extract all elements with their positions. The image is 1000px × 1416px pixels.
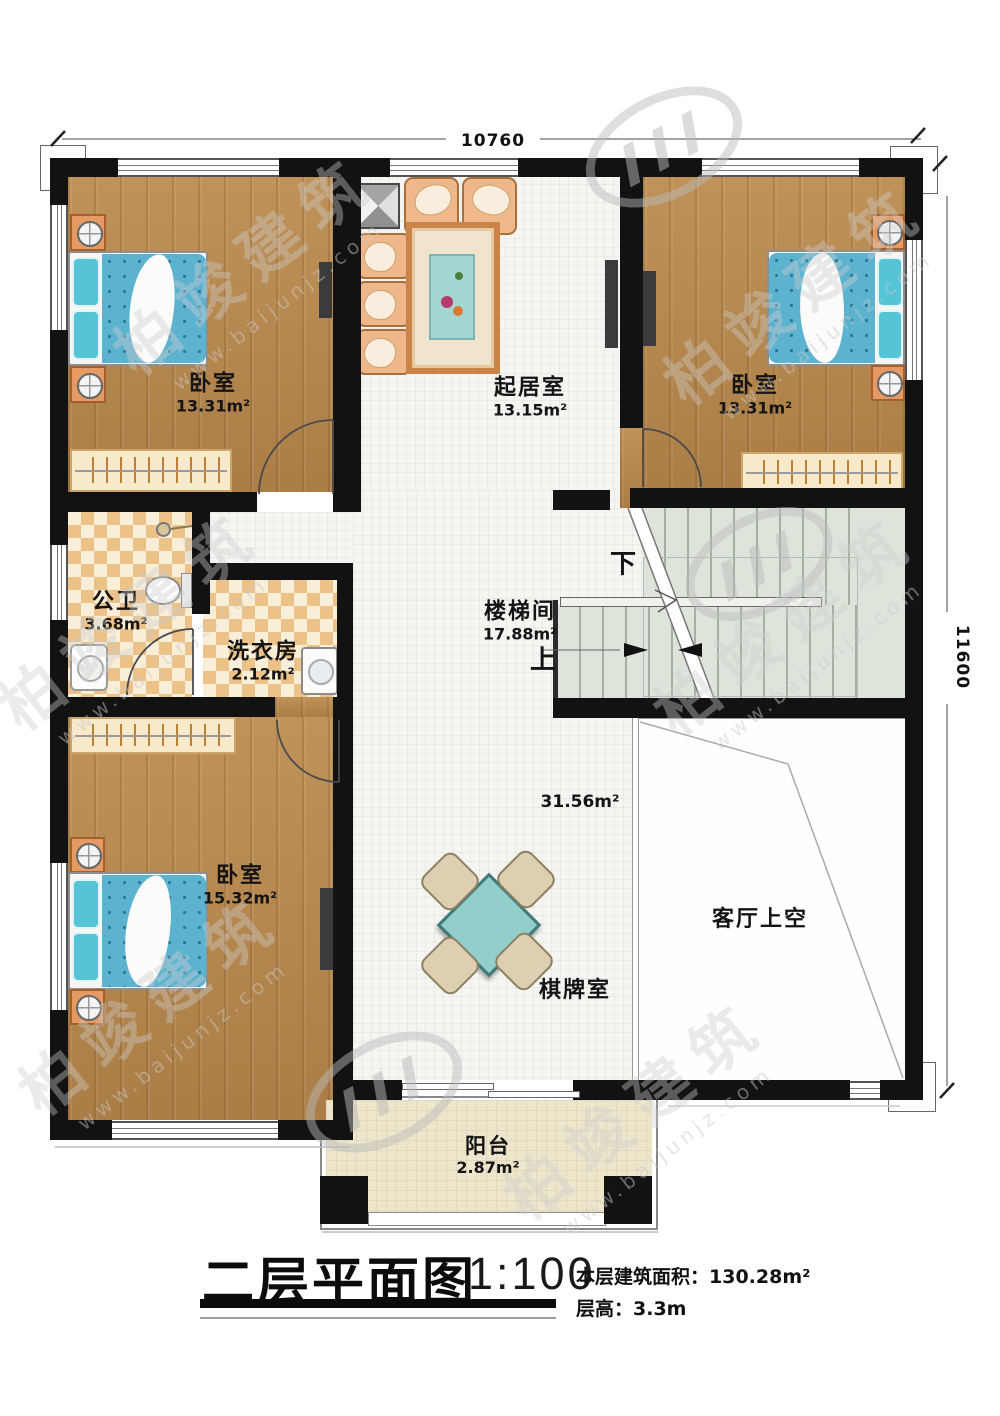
wall [333, 697, 353, 1120]
window-icon [50, 205, 68, 330]
wardrobe-icon [70, 717, 236, 754]
floor-height-line: 层高：3.3m [576, 1294, 686, 1321]
room-area: 3.68m² [84, 616, 147, 635]
wall [278, 1120, 353, 1140]
wall [553, 698, 905, 718]
wall [663, 1080, 850, 1100]
wall [620, 175, 643, 428]
wall [630, 488, 905, 508]
lamp-icon [877, 220, 903, 246]
room-name: 卧室 [203, 864, 277, 890]
floor-area-label: 本层建筑面积： [576, 1266, 709, 1288]
tv-icon [320, 888, 333, 970]
room-label-balcony: 阳台 2.87m² [456, 1134, 519, 1178]
sofa-pillow [410, 180, 455, 220]
wall [203, 563, 343, 580]
sofa-pillow [469, 181, 513, 219]
dimension-right: 11600 [952, 625, 972, 689]
nightstand-icon [70, 989, 105, 1025]
tv-icon [643, 271, 656, 346]
wardrobe-icon [70, 449, 232, 492]
pillow-icon [72, 310, 100, 360]
rug-icon [406, 222, 500, 374]
wall [353, 1080, 402, 1100]
toilet-icon [145, 576, 181, 605]
logo-bar [682, 110, 699, 156]
wall [553, 490, 610, 510]
pillow-icon [877, 310, 903, 360]
toilet-tank [181, 573, 192, 608]
stair-handrail [560, 597, 822, 607]
room-name: 起居室 [493, 376, 567, 402]
window-icon [112, 1121, 278, 1140]
corner-table-icon [356, 183, 400, 229]
wall [50, 330, 68, 545]
room-label-bedroom-top-left: 卧室 13.31m² [176, 372, 250, 417]
nightstand-icon [871, 214, 905, 250]
wall [905, 158, 923, 240]
floor-height-value: 3.3m [633, 1298, 686, 1320]
window-icon [390, 158, 518, 177]
sliding-door-icon [402, 1083, 494, 1090]
shower-head-icon [156, 522, 171, 537]
washing-machine-icon [301, 647, 338, 695]
dimension-top: 10760 [461, 131, 525, 151]
room-area: 2.12m² [227, 666, 299, 685]
room-area: 13.31m² [176, 398, 250, 417]
window-icon [850, 1081, 880, 1100]
title-underline-thin [200, 1317, 556, 1319]
window-icon [702, 158, 859, 177]
living-void-area [638, 718, 905, 1080]
room-label-bedroom-bottom-left: 卧室 15.32m² [203, 864, 277, 909]
sink-bowl [77, 655, 104, 682]
nightstand-icon [70, 366, 106, 403]
game-room-area-label: 31.56m² [541, 792, 620, 812]
room-name: 客厅上空 [712, 907, 808, 933]
pillow-icon [72, 257, 100, 307]
wardrobe-rail [75, 470, 227, 472]
window-icon [905, 240, 923, 380]
sofa-cushion [356, 281, 412, 327]
sofa-left-icon [356, 233, 412, 375]
room-area: 31.56m² [541, 792, 620, 812]
lamp-icon [877, 371, 903, 397]
nightstand-icon [70, 214, 106, 251]
balcony-sill [368, 1212, 606, 1226]
wall [573, 1080, 663, 1100]
stair-well-outline [643, 557, 858, 697]
floor-height-label: 层高： [576, 1298, 633, 1320]
floor-area-line: 本层建筑面积：130.28m² [576, 1262, 810, 1289]
wall [333, 175, 361, 512]
room-label-bathroom: 公卫 3.68m² [84, 590, 147, 635]
flower-icon [453, 306, 463, 316]
room-label-bedroom-top-right: 卧室 13.31m² [718, 374, 792, 419]
balcony-pier [320, 1176, 368, 1224]
lamp-icon [76, 995, 102, 1021]
nightstand-icon [70, 837, 105, 873]
sofa-pillow [364, 242, 396, 272]
window-icon [50, 545, 68, 620]
room-name: 楼梯间 [483, 600, 557, 626]
void-double-line [632, 718, 633, 1080]
sliding-door-icon [488, 1091, 580, 1098]
floor-plan-page: 卧室 13.31m² 起居室 13.15m² 卧室 13.31m² 公卫 3.6… [0, 0, 1000, 1416]
room-name: 洗衣房 [227, 640, 299, 666]
room-area: 13.15m² [493, 402, 567, 421]
lamp-icon [77, 221, 103, 247]
down-text: 下 [610, 550, 636, 580]
room-name: 卧室 [718, 374, 792, 400]
wall [518, 158, 702, 177]
window-icon [118, 158, 279, 177]
room-label-living: 起居室 13.15m² [493, 376, 567, 421]
flower-icon [455, 272, 463, 280]
sofa-pillow [364, 290, 396, 320]
flower-icon [441, 296, 453, 308]
room-area: 17.88m² [483, 626, 557, 645]
wall [905, 380, 923, 1100]
floor-area-value: 130.28m² [709, 1266, 810, 1288]
room-label-living-void: 客厅上空 [712, 907, 808, 933]
sofa-pillow [364, 338, 396, 368]
pillow-icon [72, 932, 100, 982]
stair-down-label: 下 [610, 550, 636, 581]
wardrobe-icon [741, 452, 903, 493]
balcony-pier [604, 1176, 652, 1224]
rug-center [429, 254, 475, 340]
wardrobe-rail [75, 735, 231, 737]
room-area: 13.31m² [718, 400, 792, 419]
wall [50, 492, 257, 512]
wall [880, 1080, 905, 1100]
room-area: 15.32m² [203, 890, 277, 909]
pillow-icon [72, 879, 100, 929]
sofa-cushion [356, 233, 412, 279]
tv-icon [605, 260, 618, 348]
window-icon [50, 863, 68, 1010]
lamp-icon [76, 843, 102, 869]
stair-lower-landing-floor [858, 605, 905, 698]
room-name: 阳台 [456, 1134, 519, 1159]
game-room-name-label: 棋牌室 [539, 978, 611, 1004]
room-name: 棋牌室 [539, 978, 611, 1004]
stair-upper-landing-floor [858, 508, 905, 605]
up-text: 上 [530, 646, 556, 676]
lamp-icon [77, 373, 103, 399]
wall [50, 697, 275, 717]
nightstand-icon [871, 365, 905, 401]
room-name: 卧室 [176, 372, 250, 398]
room-area: 2.87m² [456, 1159, 519, 1178]
bedroom3-door-gap-floor [275, 697, 337, 717]
sink-icon [70, 644, 108, 691]
wall [50, 1120, 112, 1140]
wall [50, 620, 68, 863]
sofa-cushion [356, 329, 412, 375]
tv-icon [319, 262, 332, 318]
title-underline-bar [200, 1299, 556, 1308]
pillow-icon [877, 257, 903, 307]
room-label-laundry: 洗衣房 2.12m² [227, 640, 299, 685]
washer-door [308, 659, 334, 685]
room-label-stairwell: 楼梯间 17.88m² [483, 600, 557, 645]
wall [50, 158, 68, 205]
stair-up-label: 上 [530, 646, 556, 677]
room-name: 公卫 [84, 590, 147, 616]
wardrobe-rail [746, 472, 898, 474]
